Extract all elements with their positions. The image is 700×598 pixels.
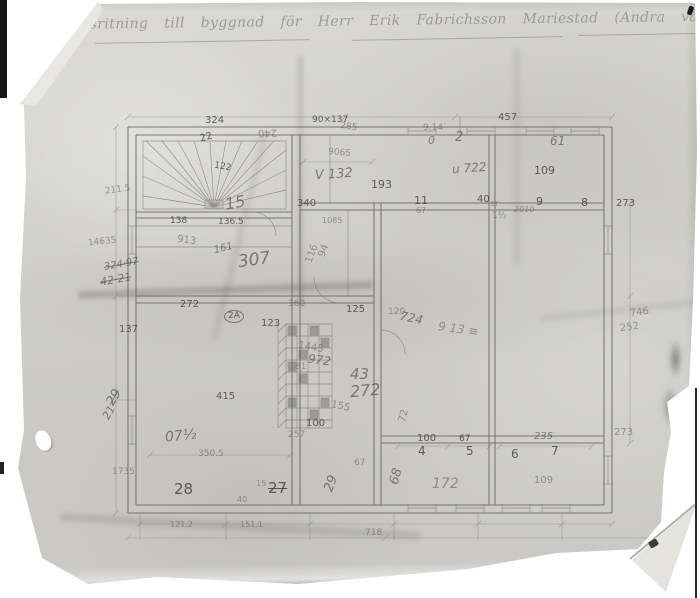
measurement-label: 100 xyxy=(417,434,436,444)
measurement-label: 1735 xyxy=(112,468,135,477)
measurement-label: 67 xyxy=(416,207,426,215)
measurement-label: 235 xyxy=(534,432,553,442)
measurement-label: 11 xyxy=(414,195,428,206)
measurement-label: 324 xyxy=(205,116,224,126)
measurement-label: 360 xyxy=(288,300,305,309)
measurement-label: 67 xyxy=(354,459,365,468)
measurement-label: 9 xyxy=(536,196,543,207)
measurement-label: 94 xyxy=(317,243,331,258)
measurement-label: 43 xyxy=(350,367,369,382)
scanned-drawing-page: { "document": { "title_line": "Arbetsrit… xyxy=(0,0,700,598)
measurement-label: 1085 xyxy=(322,217,342,225)
measurement-label: 718 xyxy=(365,529,382,538)
measurement-label: 913 xyxy=(176,235,196,248)
measurement-label: 81 xyxy=(295,363,306,372)
measurement-label: 4 xyxy=(418,445,426,457)
scan-edge-mark xyxy=(0,462,4,474)
measurement-label: 109 xyxy=(534,165,555,176)
paper-sheet: Arbetsritning till byggnad för Herr Erik… xyxy=(0,0,700,598)
measurement-label: 07½ xyxy=(164,427,197,444)
measurement-label: 22 xyxy=(199,132,214,145)
measurement-label: 9.14 xyxy=(423,124,443,133)
measurement-label: 252 xyxy=(619,322,639,335)
measurement-label: 972 xyxy=(307,352,331,367)
measurement-label: 211.5 xyxy=(104,184,131,196)
measurement-label: 350.5 xyxy=(198,450,224,459)
measurement-label: 1½ xyxy=(492,212,506,221)
measurement-label: 138 xyxy=(170,217,187,226)
measurement-label: 415 xyxy=(216,392,235,402)
scan-edge-mark xyxy=(695,388,697,598)
measurement-label: 7 xyxy=(551,445,559,457)
measurement-label: 42·21 xyxy=(99,271,132,287)
measurement-label: 272 xyxy=(349,382,381,401)
measurement-label: 125 xyxy=(346,305,365,315)
measurement-label: 273 xyxy=(616,199,635,209)
measurement-label: 121.2 xyxy=(170,521,193,529)
measurement-label: 2 xyxy=(455,131,463,144)
measurement-label: 161 xyxy=(213,242,234,256)
measurement-label: 72 xyxy=(398,409,411,424)
measurement-label: 8 xyxy=(581,197,588,208)
measurement-label: 2A xyxy=(224,310,244,323)
measurement-label: 307 xyxy=(237,250,272,271)
measurement-label: 28 xyxy=(174,482,193,497)
measurement-label: 40 xyxy=(237,496,247,504)
measurement-label: 15 xyxy=(256,480,266,488)
measurement-label: 285 xyxy=(339,122,357,133)
measurement-label: ET xyxy=(491,202,498,208)
measurement-label: 272 xyxy=(180,300,199,310)
measurement-label: 324·97 xyxy=(103,257,139,273)
annotation-layer: 3242224090×1372859.1402457619065V 132193… xyxy=(0,0,700,598)
measurement-label: 240 xyxy=(258,127,277,138)
measurement-label: 100 xyxy=(306,419,325,429)
measurement-label: 193 xyxy=(371,179,392,190)
measurement-label: 9 13 ≡ xyxy=(437,320,479,338)
measurement-label: 457 xyxy=(498,113,517,123)
measurement-label: 273 xyxy=(614,428,633,438)
scan-edge-mark xyxy=(0,0,7,98)
measurement-label: V 132 xyxy=(315,167,354,183)
measurement-label: 155 xyxy=(330,400,351,414)
measurement-label: 6 xyxy=(511,448,519,460)
measurement-label: 257 xyxy=(288,431,305,440)
measurement-label: 109 xyxy=(534,476,553,486)
measurement-label: 14635 xyxy=(88,237,117,249)
measurement-label: 0 xyxy=(428,135,435,146)
measurement-label: 172 xyxy=(432,477,459,491)
measurement-label: 29 xyxy=(322,474,340,494)
measurement-label: 122 xyxy=(213,162,231,174)
measurement-label: 15 xyxy=(224,193,247,212)
measurement-label: 68 xyxy=(388,467,405,486)
measurement-label: 2010 xyxy=(514,206,534,214)
measurement-label: 67 xyxy=(459,435,470,444)
measurement-label: 9065 xyxy=(328,148,352,159)
measurement-label: 61 xyxy=(550,135,565,147)
measurement-label: 746 xyxy=(629,307,649,320)
measurement-label: 724 xyxy=(399,310,424,327)
measurement-label: 136.5 xyxy=(218,218,244,227)
measurement-label: 40 xyxy=(477,195,490,205)
measurement-label: 137 xyxy=(119,325,138,335)
measurement-label: 123 xyxy=(261,319,280,329)
measurement-label: 340 xyxy=(297,199,316,209)
measurement-label: 5 xyxy=(466,445,474,457)
measurement-label: 151.1 xyxy=(240,521,263,529)
measurement-label: u 722 xyxy=(452,161,487,175)
measurement-label: 27 xyxy=(268,481,287,496)
